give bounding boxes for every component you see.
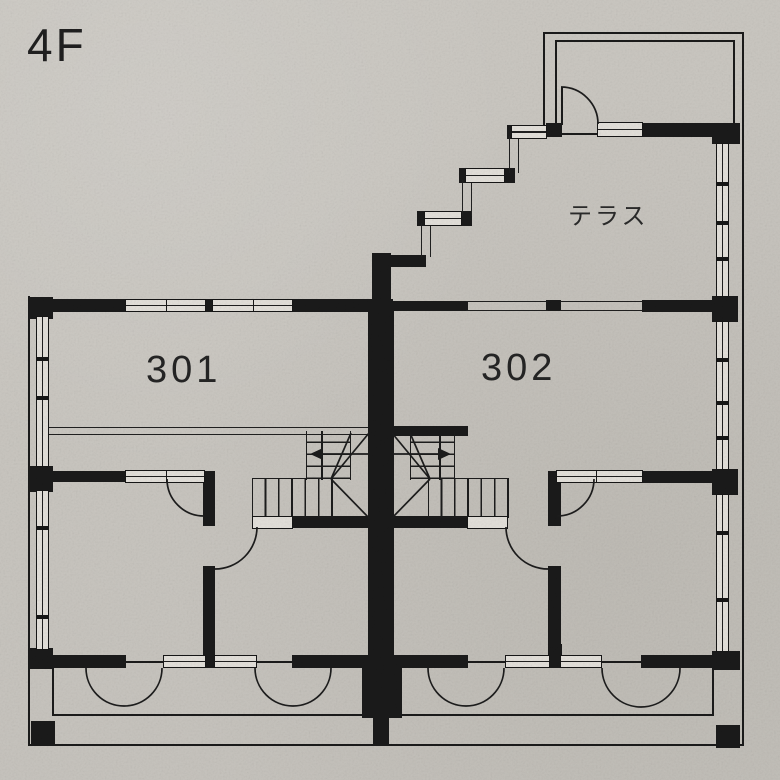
double-line-horizontal — [466, 301, 548, 311]
wall-segment — [292, 655, 368, 668]
window-horizontal — [163, 655, 206, 668]
window-mullion — [466, 175, 504, 176]
window-horizontal — [596, 470, 643, 483]
wall-segment — [375, 255, 426, 267]
window-horizontal — [166, 299, 206, 312]
window-vertical — [716, 494, 729, 652]
window-mullion — [425, 218, 461, 219]
room-door-arc-301 — [167, 479, 204, 516]
window-divider-tick — [716, 221, 729, 225]
window-horizontal — [214, 655, 257, 668]
window-horizontal — [212, 299, 254, 312]
wall-segment — [28, 299, 126, 312]
thin-line — [28, 296, 30, 746]
window-vertical — [716, 143, 729, 297]
stair-landing-box — [252, 516, 293, 529]
wall-segment — [31, 721, 55, 744]
window-mullion — [722, 495, 723, 651]
window-mullion — [164, 661, 205, 662]
window-horizontal — [556, 470, 598, 483]
wall-segment — [642, 471, 738, 483]
window-horizontal — [597, 122, 643, 137]
window-mullion — [722, 144, 723, 296]
double-line-vertical — [509, 136, 519, 173]
stair-landing-box — [467, 516, 508, 529]
hall-door-arc-301 — [215, 527, 257, 569]
thin-line — [543, 32, 744, 34]
window-mullion — [597, 476, 642, 477]
thin-line — [601, 661, 642, 663]
double-line-vertical — [462, 180, 472, 216]
window-divider-tick — [36, 357, 49, 361]
window-mullion — [561, 661, 601, 662]
wall-segment — [393, 655, 468, 668]
window-mullion — [213, 305, 253, 306]
hall-door-arc-302 — [506, 527, 548, 569]
window-mullion — [722, 322, 723, 469]
balcony-door-arc-1 — [86, 668, 162, 706]
thin-line — [255, 661, 294, 663]
balcony-door-arc-4 — [602, 668, 680, 707]
window-divider-tick — [716, 358, 729, 362]
window-mullion — [167, 305, 205, 306]
window-divider-tick — [36, 526, 49, 530]
penthouse-door-arc — [561, 87, 598, 124]
thin-line — [466, 661, 506, 663]
wall-segment — [390, 301, 468, 311]
window-horizontal — [125, 299, 167, 312]
stair-winder-right-2 — [391, 479, 430, 519]
window-horizontal — [505, 655, 550, 668]
wall-segment — [641, 655, 717, 668]
floor-label: 4F — [27, 18, 87, 72]
thin-line — [543, 32, 545, 125]
wall-segment — [47, 655, 126, 668]
thin-line — [52, 714, 362, 716]
stair-lower-run — [428, 478, 509, 518]
wall-segment — [546, 300, 561, 311]
window-divider-tick — [36, 396, 49, 400]
window-mullion — [254, 305, 292, 306]
wall-segment — [368, 303, 394, 659]
thin-line — [28, 744, 744, 746]
window-horizontal — [465, 168, 505, 183]
wall-segment — [639, 123, 713, 137]
balcony-door-arc-3 — [428, 668, 504, 706]
window-mullion — [506, 661, 549, 662]
thin-line — [124, 661, 166, 663]
window-mullion — [215, 661, 256, 662]
thin-line — [555, 40, 735, 42]
wall-segment — [712, 296, 738, 322]
thin-line — [561, 87, 563, 125]
window-horizontal — [511, 125, 547, 139]
window-divider-tick — [36, 615, 49, 619]
thin-line — [555, 40, 557, 125]
thin-line — [733, 40, 735, 125]
wall-segment — [373, 718, 389, 744]
room-door-arc-302 — [557, 479, 594, 516]
thin-line — [712, 668, 714, 716]
window-vertical — [716, 321, 729, 470]
window-mullion — [512, 131, 546, 132]
window-mullion — [126, 476, 167, 477]
window-mullion — [557, 476, 597, 477]
window-mullion — [598, 129, 642, 130]
balcony-door-arc-2 — [255, 668, 331, 706]
stair-upper-run — [306, 431, 351, 480]
stair-upper-run — [410, 431, 455, 480]
terrace-label: テラス — [568, 196, 649, 231]
wall-segment — [29, 471, 126, 482]
thin-line — [402, 714, 714, 716]
stair-lower-run — [252, 478, 333, 518]
window-horizontal — [125, 470, 168, 483]
stair-winder-left-2 — [331, 479, 370, 519]
window-divider-tick — [716, 598, 729, 602]
window-divider-tick — [716, 531, 729, 535]
window-mullion — [167, 476, 204, 477]
window-mullion — [42, 491, 43, 649]
room-label-301: 301 — [146, 349, 221, 392]
thin-line — [742, 32, 744, 746]
window-horizontal — [424, 211, 462, 226]
window-horizontal — [253, 299, 293, 312]
thin-line — [52, 668, 54, 716]
window-mullion — [42, 317, 43, 466]
window-divider-tick — [716, 182, 729, 186]
window-divider-tick — [716, 257, 729, 261]
window-horizontal — [560, 655, 602, 668]
double-line-horizontal — [560, 301, 642, 311]
window-mullion — [126, 305, 166, 306]
room-label-302: 302 — [481, 347, 556, 390]
window-divider-tick — [716, 436, 729, 440]
window-vertical — [36, 490, 49, 650]
window-divider-tick — [716, 401, 729, 405]
window-vertical — [36, 316, 49, 467]
double-line-vertical — [421, 223, 431, 257]
wall-segment — [712, 123, 740, 144]
window-horizontal — [166, 470, 205, 483]
floorplan-canvas: 4F 301 302 テラス — [0, 0, 780, 780]
